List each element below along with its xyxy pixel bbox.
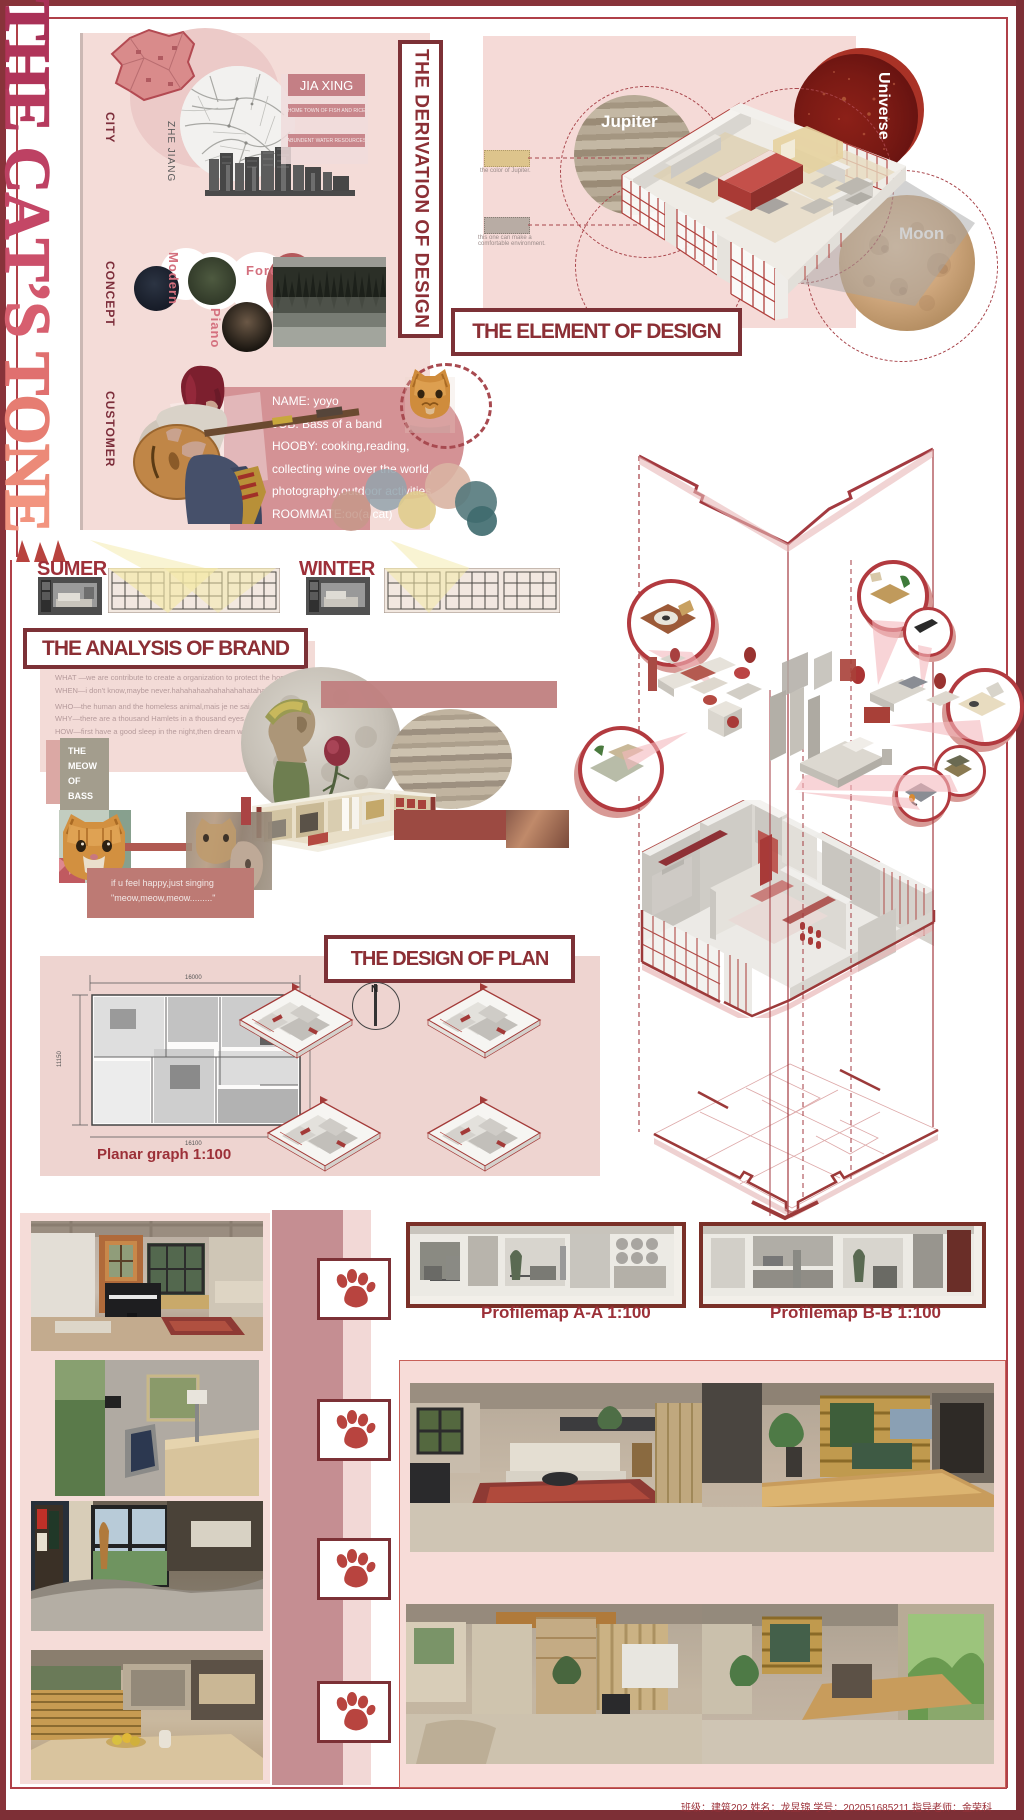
svg-text:16000: 16000 <box>185 975 202 981</box>
svg-text:11150: 11150 <box>57 1051 63 1067</box>
